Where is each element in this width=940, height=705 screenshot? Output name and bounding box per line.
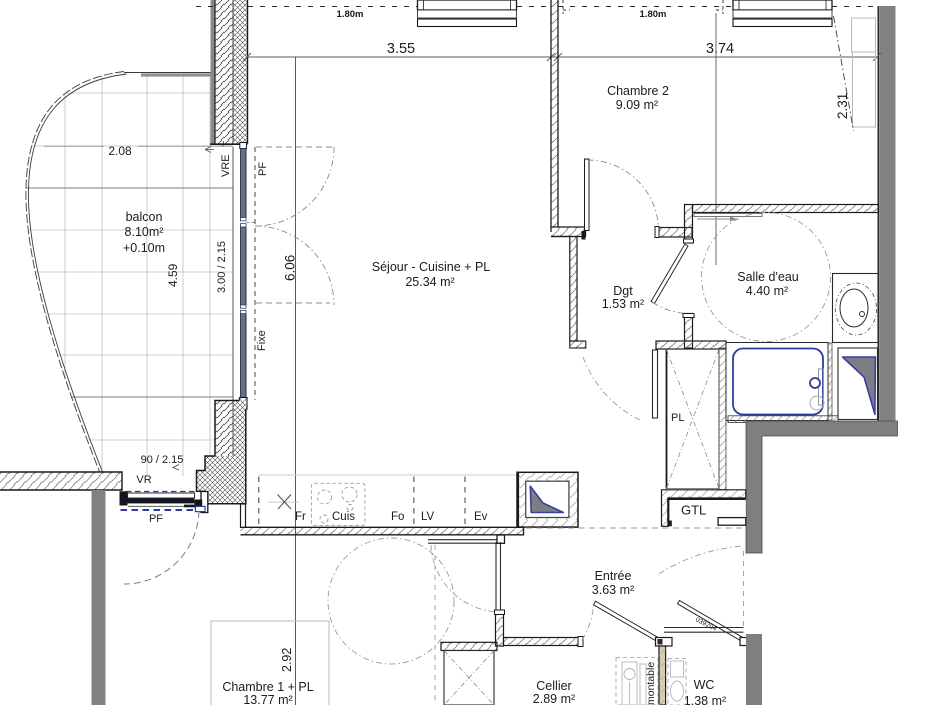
svg-text:montable: montable — [645, 662, 657, 705]
svg-text:PF: PF — [257, 162, 269, 176]
svg-text:2.92: 2.92 — [280, 648, 294, 672]
svg-text:1.38 m²: 1.38 m² — [684, 694, 726, 705]
svg-text:Cellier: Cellier — [536, 679, 571, 693]
svg-text:25.34 m²: 25.34 m² — [405, 275, 454, 289]
svg-text:4.40 m²: 4.40 m² — [746, 284, 788, 298]
svg-text:3.74: 3.74 — [706, 41, 734, 57]
svg-text:Ev: Ev — [474, 511, 488, 523]
svg-text:Entrée: Entrée — [595, 569, 632, 583]
svg-text:VRE: VRE — [220, 154, 232, 177]
svg-text:6.06: 6.06 — [283, 255, 298, 281]
svg-text:Dgt: Dgt — [613, 284, 633, 298]
svg-text:9.09 m²: 9.09 m² — [616, 98, 658, 112]
svg-text:~: ~ — [218, 141, 230, 147]
svg-text:PF: PF — [149, 513, 163, 525]
svg-text:3.00 / 2.15: 3.00 / 2.15 — [216, 241, 228, 293]
svg-text:8.10m²: 8.10m² — [125, 225, 164, 239]
svg-text:Fr: Fr — [295, 511, 306, 523]
svg-text:Chambre 2: Chambre 2 — [607, 84, 669, 98]
svg-text:3.55: 3.55 — [387, 41, 415, 57]
svg-text:2.08: 2.08 — [108, 144, 132, 158]
svg-text:13.77 m²: 13.77 m² — [243, 693, 292, 705]
svg-text:1.53 m²: 1.53 m² — [602, 297, 644, 311]
svg-text:Cuis: Cuis — [332, 511, 355, 523]
svg-text:LV: LV — [421, 511, 435, 523]
svg-text:1.80m: 1.80m — [337, 9, 364, 20]
svg-text:PL: PL — [671, 412, 684, 424]
svg-text:WC: WC — [694, 678, 715, 692]
svg-text:2.89 m²: 2.89 m² — [533, 692, 575, 705]
svg-text:Fixe: Fixe — [256, 330, 268, 351]
svg-text:Fo: Fo — [391, 511, 404, 523]
svg-text:Salle d'eau: Salle d'eau — [737, 270, 799, 284]
svg-text:Séjour - Cuisine + PL: Séjour - Cuisine + PL — [372, 260, 491, 274]
svg-text:GTL: GTL — [681, 503, 706, 518]
svg-text:Chambre 1 + PL: Chambre 1 + PL — [222, 680, 313, 694]
svg-text:1.80m: 1.80m — [640, 9, 667, 20]
svg-text:3.63 m²: 3.63 m² — [592, 583, 634, 597]
svg-text:4.59: 4.59 — [166, 263, 180, 287]
svg-text:VR: VR — [136, 474, 151, 486]
svg-text:+0.10m: +0.10m — [123, 241, 165, 255]
svg-text:2.31: 2.31 — [835, 93, 850, 119]
svg-text:90 / 2.15: 90 / 2.15 — [141, 454, 184, 466]
svg-text:balcon: balcon — [126, 210, 163, 224]
